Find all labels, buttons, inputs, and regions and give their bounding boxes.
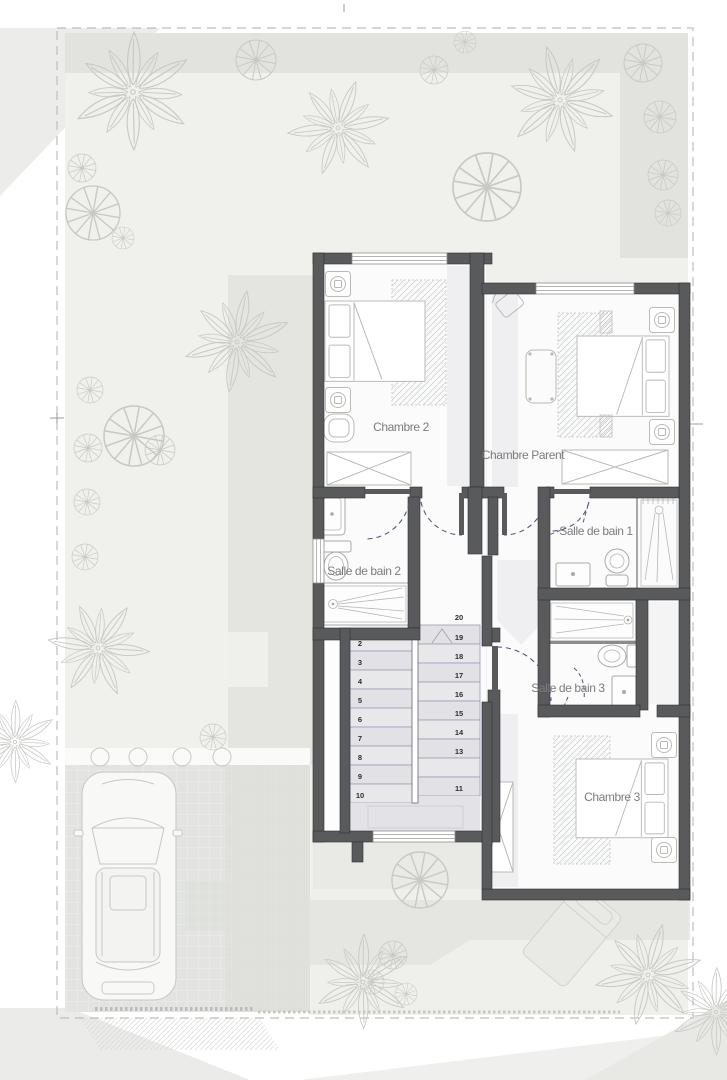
step-number: 9	[358, 772, 362, 781]
step-number: 14	[455, 728, 464, 737]
column	[600, 415, 612, 437]
palm-tree-icon	[0, 700, 54, 782]
room-label-sdb2: Salle de bain 2	[327, 564, 401, 578]
step-number: 6	[358, 715, 362, 724]
room-label-chambre-2: Chambre 2	[373, 420, 429, 434]
room-label-chambre-parent: Chambre Parent	[482, 448, 566, 462]
window	[352, 253, 447, 264]
step-number: 10	[356, 791, 364, 800]
window	[313, 539, 324, 583]
wardrobe-icon	[327, 452, 411, 485]
step-number: 15	[455, 709, 463, 718]
door-leaf	[545, 707, 585, 712]
step-number: 17	[455, 671, 463, 680]
column	[600, 311, 612, 333]
door-leaf	[459, 493, 464, 535]
door-leaf	[492, 646, 498, 702]
step-number: 11	[455, 784, 463, 793]
step-number: 18	[455, 652, 463, 661]
door-leaf	[502, 493, 507, 535]
room-label-sdb3: Salle de bain 3	[531, 681, 605, 695]
armchair-icon	[324, 414, 354, 442]
shower-icon	[548, 600, 636, 644]
window	[536, 283, 634, 294]
nightstand-lamp-icon	[326, 272, 351, 297]
step-number: 19	[455, 633, 463, 642]
step-number: 5	[358, 696, 362, 705]
step-number: 20	[455, 613, 463, 622]
nightstand-lamp-icon	[652, 733, 677, 758]
vanity-icon	[612, 676, 636, 709]
nightstand-lamp-icon	[650, 308, 675, 333]
step-number: 16	[455, 690, 463, 699]
toilet-icon	[605, 549, 629, 586]
door-leaf	[552, 489, 590, 494]
step-number: 3	[358, 658, 362, 667]
ramp-hatch	[80, 1018, 280, 1050]
wardrobe-icon	[562, 450, 668, 484]
double-bed-icon	[577, 336, 669, 416]
staircase: 2 3 4 5 6 7 8 9 10 20 19 18 17 16 15 14 …	[350, 613, 480, 833]
step-number: 2	[358, 639, 362, 648]
vanity-icon	[556, 563, 590, 586]
room-label-sdb1: Salle de bain 1	[559, 524, 633, 538]
floor-plan-drawing: 2 3 4 5 6 7 8 9 10 20 19 18 17 16 15 14 …	[0, 0, 727, 1080]
nightstand-lamp-icon	[326, 388, 351, 413]
room-label-chambre-3: Chambre 3	[584, 790, 640, 804]
shower-icon	[321, 583, 409, 625]
window	[373, 831, 455, 842]
car-top-icon	[74, 772, 182, 1000]
toilet-icon	[598, 645, 637, 667]
nightstand-lamp-icon	[650, 420, 675, 445]
step-number: 7	[358, 734, 362, 743]
step-number: 13	[455, 747, 463, 756]
double-bed-icon	[325, 301, 425, 381]
door-leaf	[365, 489, 410, 494]
floor-plan-canvas: 2 3 4 5 6 7 8 9 10 20 19 18 17 16 15 14 …	[0, 0, 727, 1080]
step-number: 8	[358, 753, 362, 762]
nightstand-lamp-icon	[652, 838, 677, 863]
